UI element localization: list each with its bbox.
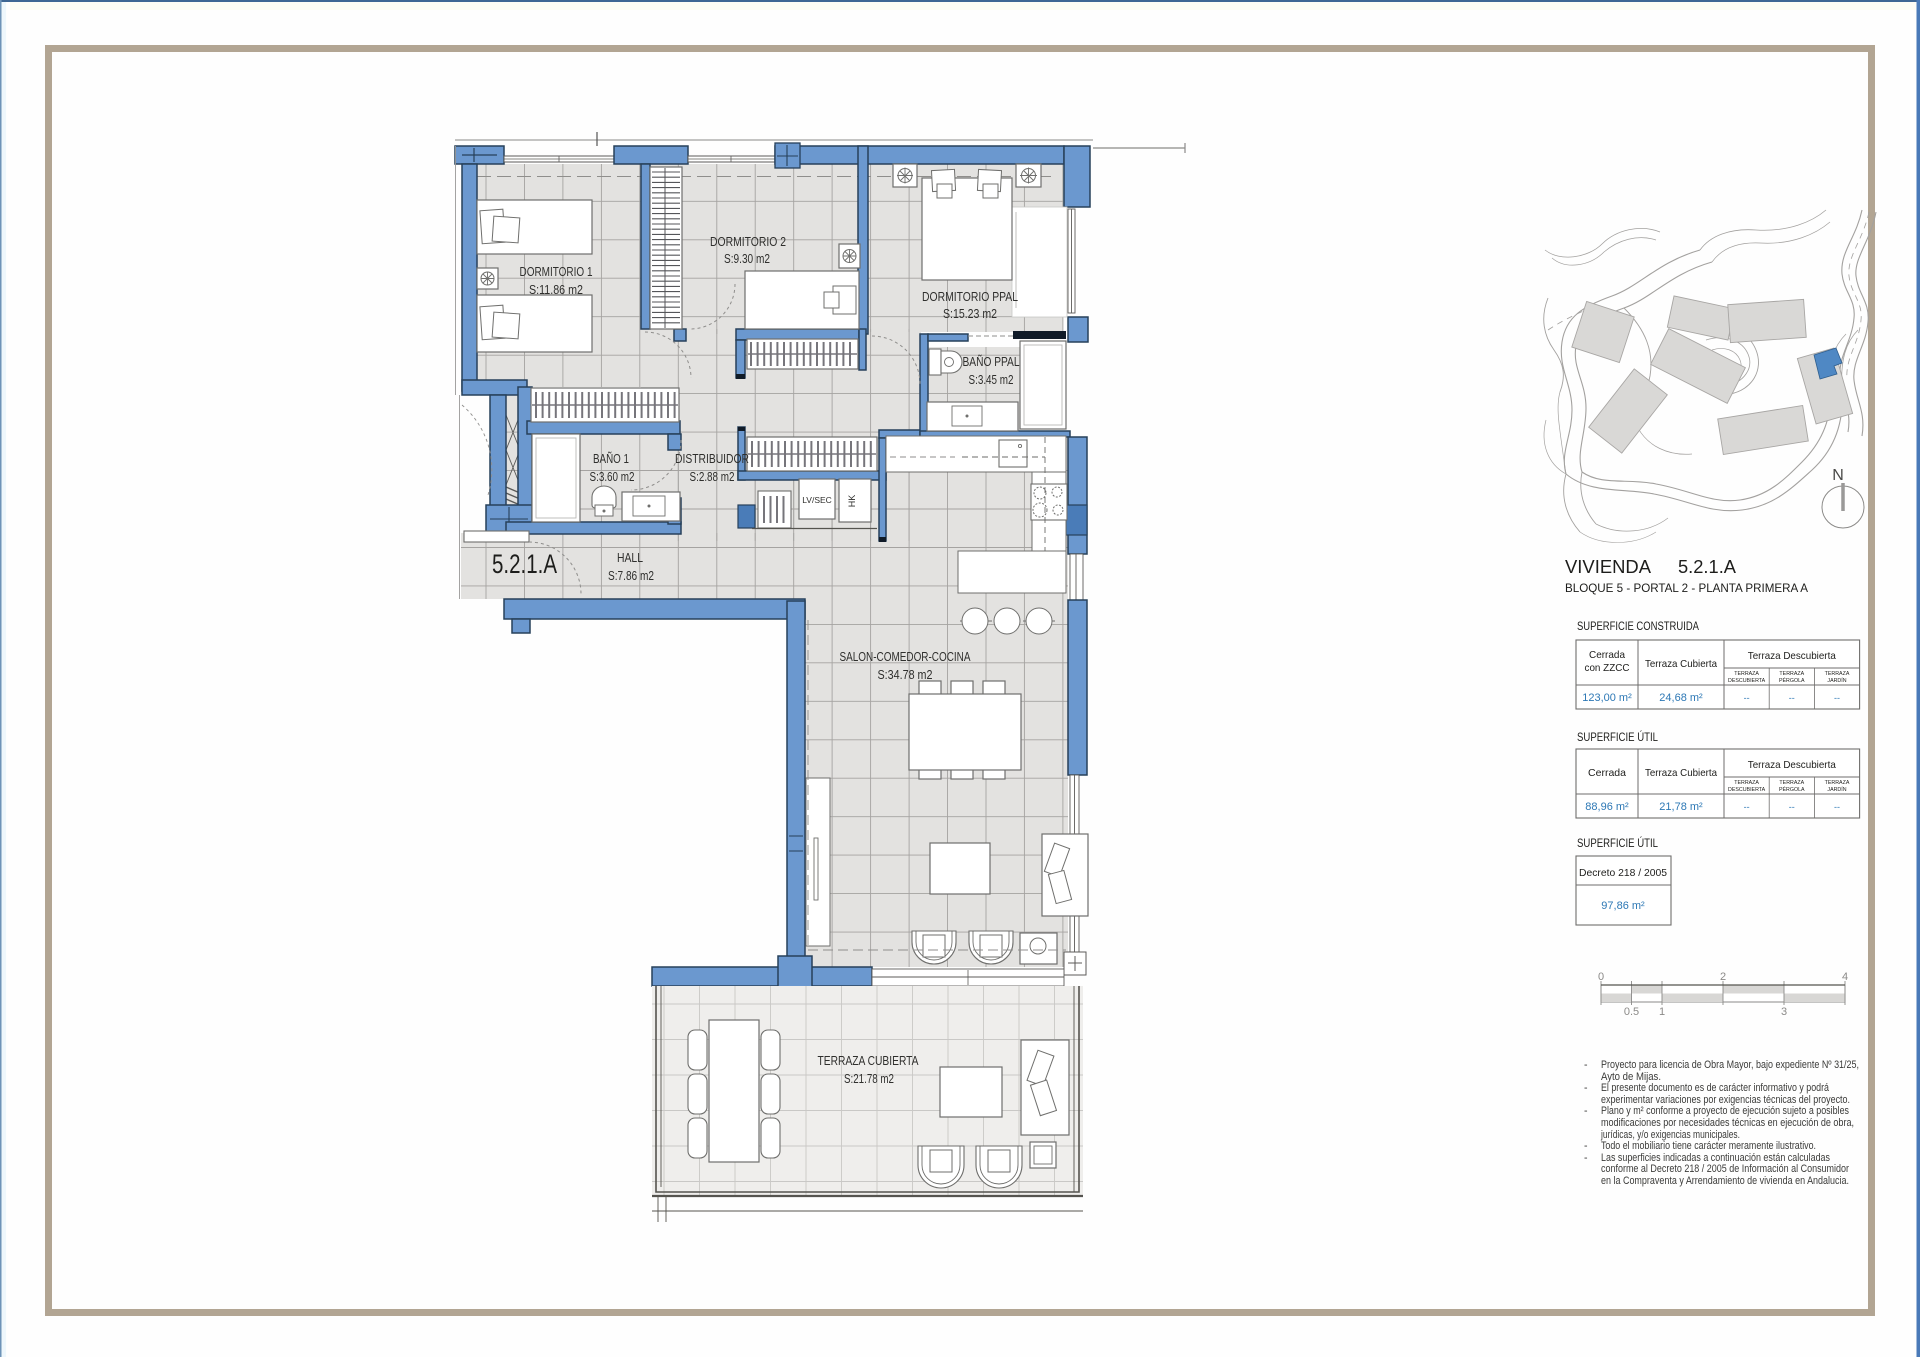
svg-text:Plano y m² conforme a proyecto: Plano y m² conforme a proyecto de ejecuc… [1601,1105,1849,1117]
svg-text:BLOQUE 5 - PORTAL 2 - PLANTA P: BLOQUE 5 - PORTAL 2 - PLANTA PRIMERA A [1565,581,1809,595]
svg-text:-: - [1584,1105,1588,1117]
svg-text:--: -- [1744,693,1750,703]
svg-text:88,96 m²: 88,96 m² [1585,801,1629,813]
svg-text:--: -- [1834,802,1840,812]
svg-text:SALON-COMEDOR-COCINA: SALON-COMEDOR-COCINA [840,650,972,664]
svg-text:Decreto 218 / 2005: Decreto 218 / 2005 [1579,867,1667,879]
svg-text:DORMITORIO 2: DORMITORIO 2 [710,235,786,249]
svg-text:DESCUBIERTA: DESCUBIERTA [1728,678,1766,684]
svg-text:97,86 m²: 97,86 m² [1601,900,1645,912]
svg-text:S:15.23 m2: S:15.23 m2 [943,307,997,321]
svg-text:SUPERFICIE ÚTIL: SUPERFICIE ÚTIL [1577,837,1658,850]
svg-text:TERRAZA CUBIERTA: TERRAZA CUBIERTA [818,1054,920,1068]
svg-text:DESCUBIERTA: DESCUBIERTA [1728,787,1766,793]
svg-text:TERRAZA: TERRAZA [1779,671,1804,677]
svg-text:BAÑO PPAL: BAÑO PPAL [963,355,1020,369]
svg-text:2: 2 [1720,971,1726,983]
svg-text:modificaciones por necesidades: modificaciones por necesidades técnicas … [1601,1117,1854,1129]
svg-text:24,68 m²: 24,68 m² [1659,692,1703,704]
svg-text:4: 4 [1842,971,1848,983]
svg-text:DORMITORIO PPAL: DORMITORIO PPAL [922,290,1018,304]
svg-text:--: -- [1789,802,1795,812]
svg-text:--: -- [1789,693,1795,703]
svg-text:S:9.30 m2: S:9.30 m2 [724,252,770,266]
svg-text:DISTRIBUIDOR: DISTRIBUIDOR [675,452,749,466]
svg-text:0: 0 [1598,971,1604,983]
svg-text:Cerrada: Cerrada [1588,767,1626,779]
svg-text:S:21.78 m2: S:21.78 m2 [844,1072,894,1086]
svg-text:TERRAZA: TERRAZA [1734,780,1759,786]
svg-text:5.2.1.A: 5.2.1.A [492,549,557,579]
svg-text:N: N [1832,467,1844,484]
svg-text:Cerrada: Cerrada [1589,649,1625,661]
svg-text:Proyecto para licencia de Obra: Proyecto para licencia de Obra Mayor, ba… [1601,1059,1859,1071]
svg-text:--: -- [1834,693,1840,703]
svg-text:VIVIENDA: VIVIENDA [1565,556,1652,577]
svg-text:S:11.86 m2: S:11.86 m2 [529,283,583,297]
svg-text:LV/SEC: LV/SEC [802,495,832,505]
svg-text:S:34.78 m2: S:34.78 m2 [878,668,933,682]
svg-text:en la Compraventa y Arrendamie: en la Compraventa y Arrendamiento de viv… [1601,1175,1849,1187]
svg-text:5.2.1.A: 5.2.1.A [1678,556,1737,577]
svg-text:-: - [1584,1082,1588,1094]
svg-text:0.5: 0.5 [1624,1006,1639,1018]
svg-text:El presente documento es de ca: El presente documento es de carácter inf… [1601,1082,1829,1094]
svg-text:-: - [1584,1140,1588,1152]
svg-text:conforme al Decreto 218 / 2005: conforme al Decreto 218 / 2005 de Inform… [1601,1163,1849,1175]
svg-text:TERRAZA: TERRAZA [1825,780,1850,786]
svg-text:SUPERFICIE CONSTRUIDA: SUPERFICIE CONSTRUIDA [1577,621,1699,633]
svg-text:JARDÍN: JARDÍN [1827,677,1846,684]
svg-text:Terraza Cubierta: Terraza Cubierta [1645,658,1717,670]
svg-text:TERRAZA: TERRAZA [1734,671,1759,677]
svg-text:-: - [1584,1152,1588,1164]
svg-text:Todo el mobiliario tiene carác: Todo el mobiliario tiene carácter merame… [1601,1140,1816,1152]
svg-text:TERRAZA: TERRAZA [1779,780,1804,786]
svg-text:Terraza Descubierta: Terraza Descubierta [1748,759,1836,771]
svg-text:S:3.60 m2: S:3.60 m2 [590,470,635,484]
svg-text:Terraza Cubierta: Terraza Cubierta [1645,767,1717,779]
svg-text:-: - [1584,1059,1588,1071]
svg-text:TERRAZA: TERRAZA [1825,671,1850,677]
svg-text:con ZZCC: con ZZCC [1585,662,1630,674]
svg-text:HK: HK [847,495,857,508]
svg-text:--: -- [1744,802,1750,812]
svg-text:JARDÍN: JARDÍN [1827,786,1846,793]
svg-text:3: 3 [1781,1006,1787,1018]
svg-text:DORMITORIO 1: DORMITORIO 1 [520,265,593,279]
svg-text:Terraza Descubierta: Terraza Descubierta [1748,650,1836,662]
svg-text:21,78 m²: 21,78 m² [1659,801,1703,813]
svg-text:123,00 m²: 123,00 m² [1582,692,1632,704]
svg-text:S:3.45 m2: S:3.45 m2 [969,373,1014,387]
svg-text:PÉRGOLA: PÉRGOLA [1779,677,1805,684]
svg-text:S:2.88 m2: S:2.88 m2 [690,470,735,484]
svg-text:HALL: HALL [617,551,643,565]
svg-text:PÉRGOLA: PÉRGOLA [1779,786,1805,793]
svg-text:S:7.86 m2: S:7.86 m2 [608,569,654,583]
svg-text:1: 1 [1659,1006,1665,1018]
svg-text:SUPERFICIE ÚTIL: SUPERFICIE ÚTIL [1577,731,1658,744]
svg-text:BAÑO 1: BAÑO 1 [593,452,629,466]
